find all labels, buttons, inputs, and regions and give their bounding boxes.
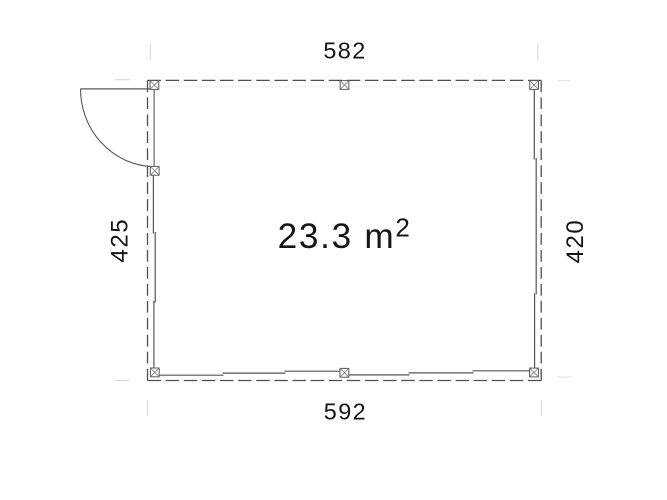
svg-text:582: 582 <box>323 37 366 63</box>
svg-text:23.3 m2: 23.3 m2 <box>278 213 412 257</box>
svg-text:425: 425 <box>106 218 133 263</box>
svg-text:592: 592 <box>324 398 367 424</box>
svg-text:420: 420 <box>562 219 589 264</box>
